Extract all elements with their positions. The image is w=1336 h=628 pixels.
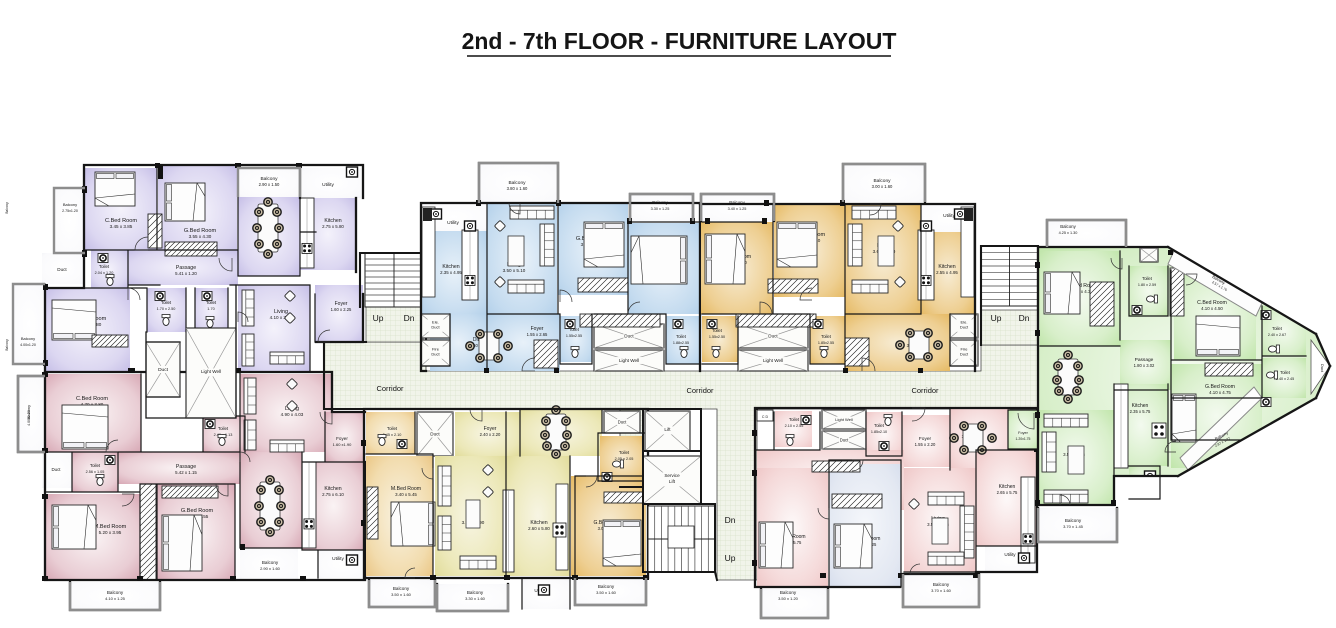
svg-text:Duct: Duct	[57, 267, 67, 272]
svg-text:1.55x2.55: 1.55x2.55	[566, 334, 582, 338]
svg-text:C D: C D	[762, 415, 769, 419]
svg-text:Lift: Lift	[669, 479, 676, 484]
svg-text:2.90 x 1.50: 2.90 x 1.50	[259, 182, 280, 187]
svg-text:1.70: 1.70	[207, 307, 214, 311]
svg-text:5.42 x 1.15: 5.42 x 1.15	[175, 470, 197, 475]
svg-text:Balcony: Balcony	[1065, 518, 1082, 523]
svg-text:4.10 x 4.50: 4.10 x 4.50	[1201, 306, 1223, 311]
svg-text:Duct: Duct	[51, 467, 61, 472]
svg-text:4.00x1.20: 4.00x1.20	[27, 410, 31, 426]
svg-text:Light Well: Light Well	[201, 369, 221, 374]
svg-text:1.20x1.75: 1.20x1.75	[1016, 437, 1031, 441]
svg-text:Light Well: Light Well	[619, 358, 639, 363]
svg-text:1.60 x1.90: 1.60 x1.90	[333, 442, 352, 447]
svg-text:5.20 x 3.95: 5.20 x 3.95	[99, 530, 122, 535]
svg-text:2.75 x 6.10: 2.75 x 6.10	[322, 492, 344, 497]
svg-text:3.50 x 1.60: 3.50 x 1.60	[391, 592, 412, 597]
svg-text:1.55 x 2.20: 1.55 x 2.20	[915, 442, 936, 447]
svg-text:Up: Up	[725, 553, 736, 563]
svg-text:2.55 x 4.95: 2.55 x 4.95	[936, 270, 958, 275]
svg-text:4.90 x 4.03: 4.90 x 4.03	[281, 412, 304, 417]
svg-text:1.55 x 2.65: 1.55 x 2.65	[527, 332, 548, 337]
svg-text:3.80 x 1.60: 3.80 x 1.60	[507, 186, 528, 191]
svg-text:Balcony: Balcony	[21, 336, 35, 341]
svg-text:Up: Up	[373, 313, 384, 323]
svg-text:2.40 x 2.45: 2.40 x 2.45	[1276, 377, 1294, 381]
svg-text:1.80 x 2.59: 1.80 x 2.59	[1138, 283, 1156, 287]
svg-text:2.40 x 2.20: 2.40 x 2.20	[480, 432, 501, 437]
svg-text:Toilet: Toilet	[99, 264, 110, 269]
svg-text:Duct: Duct	[960, 352, 969, 357]
svg-text:1.80 x 3.02: 1.80 x 3.02	[1134, 363, 1155, 368]
svg-text:Balcony: Balcony	[1060, 224, 1076, 229]
svg-text:Lift: Lift	[664, 427, 671, 432]
svg-text:Utility: Utility	[943, 213, 955, 219]
svg-text:Balcony: Balcony	[107, 590, 124, 595]
svg-text:3.50 x 1.20: 3.50 x 1.20	[778, 596, 799, 601]
svg-text:2.35 x 4.95: 2.35 x 4.95	[440, 270, 462, 275]
svg-text:Service: Service	[664, 473, 680, 478]
svg-text:Toilet: Toilet	[1280, 370, 1291, 375]
svg-text:2.05 x 2.05: 2.05 x 2.05	[615, 457, 634, 461]
svg-text:Light Well: Light Well	[835, 417, 853, 422]
svg-text:Toilet: Toilet	[821, 334, 832, 339]
svg-text:Utility: Utility	[322, 182, 334, 188]
svg-text:Balcony: Balcony	[933, 582, 950, 587]
svg-text:Utility: Utility	[1004, 552, 1016, 557]
svg-text:4.00x1.20: 4.00x1.20	[20, 343, 36, 347]
svg-text:3.30 x 1.25: 3.30 x 1.25	[651, 207, 670, 211]
svg-text:Foyer: Foyer	[1018, 431, 1028, 435]
svg-text:Toilet: Toilet	[1272, 326, 1283, 331]
svg-text:Duct: Duct	[431, 325, 440, 330]
svg-text:Balcony: Balcony	[393, 586, 410, 591]
svg-text:Balcony: Balcony	[598, 584, 615, 589]
svg-text:Dn: Dn	[1019, 313, 1030, 323]
svg-text:3.50 x 1.60: 3.50 x 1.60	[596, 590, 617, 595]
svg-text:Toilet: Toilet	[619, 450, 630, 455]
svg-text:2.35 x 5.75: 2.35 x 5.75	[1130, 409, 1151, 414]
svg-text:Corridor: Corridor	[686, 386, 714, 395]
svg-text:Utility: Utility	[447, 220, 459, 226]
svg-text:Utility: Utility	[332, 556, 344, 562]
svg-text:Balcony: Balcony	[467, 590, 484, 595]
svg-text:Duct: Duct	[624, 334, 634, 339]
svg-text:4.10 x 4.75: 4.10 x 4.75	[1209, 390, 1231, 395]
svg-text:Corridor: Corridor	[376, 384, 404, 393]
svg-text:3.55 x 4.30: 3.55 x 4.30	[189, 234, 212, 239]
svg-text:2.56 x 1.05: 2.56 x 1.05	[86, 470, 105, 474]
svg-text:3.70 x 1.60: 3.70 x 1.60	[931, 588, 952, 593]
svg-text:Dn: Dn	[725, 515, 736, 525]
svg-text:3.00 x 1.60: 3.00 x 1.60	[872, 184, 893, 189]
svg-text:Duct: Duct	[618, 419, 627, 424]
svg-text:2.90 x 1.60: 2.90 x 1.60	[260, 566, 281, 571]
svg-text:Duct: Duct	[840, 437, 849, 442]
svg-text:3.50 x 5.10: 3.50 x 5.10	[503, 268, 526, 273]
svg-text:Duct: Duct	[1320, 364, 1325, 373]
svg-text:4.25 x 1.30: 4.25 x 1.30	[1059, 231, 1078, 235]
svg-text:Foyer: Foyer	[336, 436, 348, 441]
svg-text:1.88x2.55: 1.88x2.55	[673, 341, 689, 345]
svg-text:Toilet: Toilet	[387, 426, 398, 431]
svg-text:1.70 x 2.50: 1.70 x 2.50	[157, 307, 176, 311]
svg-text:Light Well: Light Well	[763, 358, 783, 363]
svg-text:1.85x2.55: 1.85x2.55	[818, 341, 834, 345]
svg-text:3.45 x 3.85: 3.45 x 3.85	[110, 224, 133, 229]
svg-text:2.75 x 5.80: 2.75 x 5.80	[322, 224, 344, 229]
svg-text:Balcony: Balcony	[5, 339, 9, 351]
svg-text:Toilet: Toilet	[1142, 276, 1153, 281]
svg-text:2.40 x 2.67: 2.40 x 2.67	[1268, 333, 1286, 337]
svg-text:Balcony: Balcony	[262, 560, 279, 565]
svg-text:Dn: Dn	[404, 313, 415, 323]
svg-text:2.60 x 5.80: 2.60 x 5.80	[528, 526, 550, 531]
svg-text:Duct: Duct	[431, 352, 440, 357]
svg-text:Duct: Duct	[430, 432, 440, 437]
svg-text:1.60 x 2.25: 1.60 x 2.25	[331, 307, 352, 312]
svg-text:Toilet: Toilet	[218, 426, 229, 431]
svg-text:2nd - 7th FLOOR - FURNITURE L: 2nd - 7th FLOOR - FURNITURE LAYOUT	[462, 28, 897, 54]
svg-text:Toilet: Toilet	[676, 334, 687, 339]
svg-text:Up: Up	[991, 313, 1002, 323]
svg-text:4.10 x 1.25: 4.10 x 1.25	[105, 596, 126, 601]
svg-text:Balcony: Balcony	[780, 590, 797, 595]
svg-text:Toilet: Toilet	[874, 423, 885, 428]
svg-text:5.41 x 1.20: 5.41 x 1.20	[175, 271, 197, 276]
svg-text:Balcony: Balcony	[63, 202, 77, 207]
svg-text:2.75x1.20: 2.75x1.20	[62, 209, 78, 213]
svg-text:Toilet: Toilet	[90, 463, 101, 468]
svg-text:1.85x2.10: 1.85x2.10	[871, 430, 887, 434]
svg-text:3.30 x 1.60: 3.30 x 1.60	[465, 596, 486, 601]
svg-text:3.40 x 5.45: 3.40 x 5.45	[395, 492, 417, 497]
svg-text:1.55x2.50: 1.55x2.50	[709, 335, 725, 339]
svg-text:Balcony: Balcony	[5, 202, 9, 214]
svg-text:Corridor: Corridor	[911, 386, 939, 395]
svg-text:3.40 x 1.25: 3.40 x 1.25	[728, 207, 747, 211]
svg-text:3.70 x 1.45: 3.70 x 1.45	[1063, 524, 1084, 529]
svg-text:2.65 x 5.75: 2.65 x 5.75	[997, 490, 1018, 495]
svg-text:Duct: Duct	[768, 334, 778, 339]
svg-text:Duct: Duct	[158, 367, 169, 373]
svg-text:Duct: Duct	[960, 325, 969, 330]
svg-text:Toilet: Toilet	[789, 417, 800, 422]
